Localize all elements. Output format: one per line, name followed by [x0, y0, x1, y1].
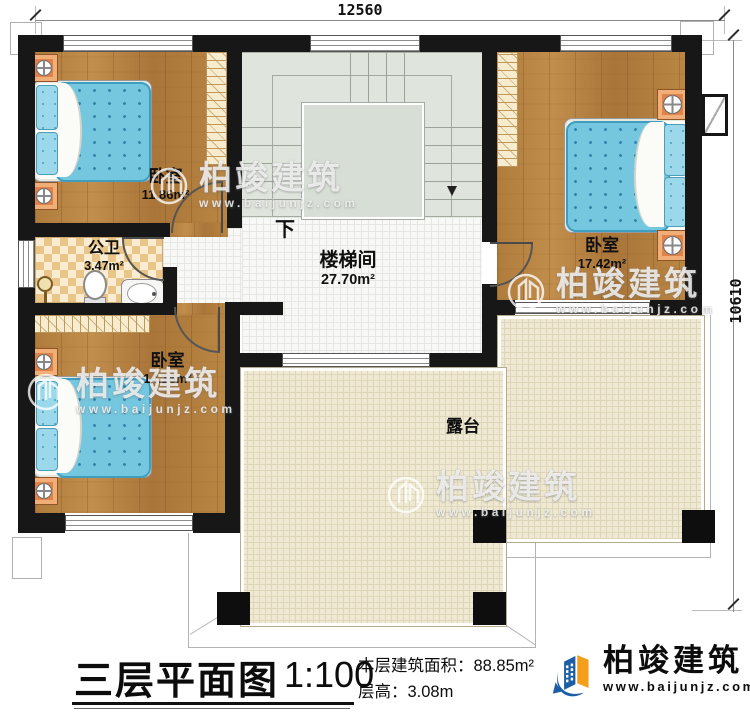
room-area: 17.42m²: [552, 256, 652, 271]
bed-pillow: [36, 85, 58, 130]
nightstand: [657, 89, 688, 120]
top-dimension-line: [35, 20, 725, 21]
room-name: 卧室: [118, 167, 213, 187]
interior-wall: [225, 302, 283, 315]
room-label-bedroom-top-left: 卧室 11.86m²: [118, 167, 213, 202]
stair-treads-right: [423, 110, 482, 216]
overhang-line: [188, 533, 189, 648]
interior-wall: [482, 52, 497, 242]
right-dimension-value: 10610: [727, 271, 745, 331]
terrace-column: [682, 510, 715, 543]
room-name: 公卫: [62, 240, 146, 259]
exterior-wall: [685, 35, 702, 315]
window: [65, 515, 193, 531]
exterior-wall: [18, 288, 35, 533]
window: [63, 35, 193, 52]
window: [310, 35, 420, 52]
floor-height-line: 层高：3.08m: [358, 680, 534, 706]
interior-wall: [18, 303, 166, 315]
toilet-bowl: [83, 270, 107, 300]
room-label-terrace: 露台: [434, 417, 492, 437]
window: [282, 353, 430, 367]
stair-direction-label: 下: [271, 219, 299, 243]
room-label-stairwell: 楼梯间 27.70m²: [287, 250, 409, 290]
terrace-floor-left: [240, 367, 507, 627]
wardrobe: [497, 52, 518, 167]
dim-ext-line: [692, 610, 742, 611]
wardrobe: [206, 52, 227, 165]
interior-wall: [227, 353, 282, 367]
floor-area-value: 88.85m²: [474, 657, 535, 675]
company-logo-icon: [550, 644, 597, 700]
room-label-bedroom-right: 卧室 17.42m²: [552, 236, 652, 271]
stair-treads-top: [333, 53, 407, 104]
room-name: 卧室: [120, 351, 215, 371]
floor-plan: 12560 10610: [0, 0, 750, 718]
stair-direction-arrow: [447, 186, 457, 196]
room-label-bathroom: 公卫 3.47m²: [62, 240, 146, 274]
floor-height-label: 层高：: [358, 683, 408, 701]
room-name: 露台: [434, 417, 492, 437]
title-block: 三层平面图 1:100 本层建筑面积：88.85m² 层高：3.08m: [0, 640, 750, 718]
bed-blanket: [634, 122, 664, 227]
room-name: 楼梯间: [287, 250, 409, 272]
bay-window-box: [702, 94, 728, 136]
interior-wall: [482, 284, 497, 367]
title-underline: [72, 702, 354, 705]
terrace-column: [473, 592, 506, 625]
room-area: 3.47m²: [62, 259, 146, 274]
title-underline: [74, 708, 350, 709]
bed-pillow: [664, 177, 687, 227]
nightstand: [657, 230, 688, 261]
exterior-wall: [650, 300, 702, 315]
exterior-wall: [193, 35, 310, 52]
stair-void: [302, 103, 424, 219]
terrace-column: [217, 592, 250, 625]
room-area: 11.86m²: [118, 187, 213, 202]
plan-title: 三层平面图: [74, 650, 279, 706]
bed-pillow: [36, 381, 58, 426]
room-area: 27.70m²: [287, 272, 409, 289]
top-dimension-value: 12560: [300, 1, 420, 19]
room-label-bedroom-bottom-left: 卧室 14.16m²: [120, 351, 215, 386]
company-name: 柏竣建筑: [603, 644, 750, 678]
room-area: 14.16m²: [120, 371, 215, 386]
overhang-line: [535, 532, 536, 648]
shower-head: [37, 276, 53, 292]
overhang-line: [507, 557, 711, 558]
exterior-wall: [18, 35, 35, 240]
exterior-wall: [193, 513, 230, 533]
closet: [32, 315, 150, 333]
exterior-wall: [18, 513, 65, 533]
plan-info: 本层建筑面积：88.85m² 层高：3.08m: [358, 654, 534, 705]
direction-text: 下: [271, 219, 299, 243]
bed-pillow: [664, 124, 687, 176]
exterior-wall: [482, 300, 515, 315]
bed-pillow: [36, 132, 58, 175]
floor-area-line: 本层建筑面积：88.85m²: [358, 654, 534, 680]
sink-faucet: [152, 292, 156, 296]
floor-height-value: 3.08m: [408, 683, 454, 701]
interior-wall: [18, 223, 170, 237]
company-logo: 柏竣建筑 www.baijunjz.com: [550, 644, 750, 700]
stair-treads-left: [238, 110, 302, 216]
company-website: www.baijunjz.com: [603, 679, 750, 694]
room-name: 卧室: [552, 236, 652, 256]
interior-wall: [227, 52, 242, 228]
window: [18, 240, 35, 288]
window: [560, 35, 672, 52]
corner-ref-mark: [12, 537, 42, 579]
bed-pillow: [36, 428, 58, 471]
floor-area-label: 本层建筑面积：: [358, 657, 474, 675]
terrace-floor-right: [497, 315, 705, 543]
terrace-column: [473, 510, 506, 543]
window: [515, 302, 650, 314]
interior-wall: [225, 302, 240, 533]
exterior-wall: [420, 35, 560, 52]
